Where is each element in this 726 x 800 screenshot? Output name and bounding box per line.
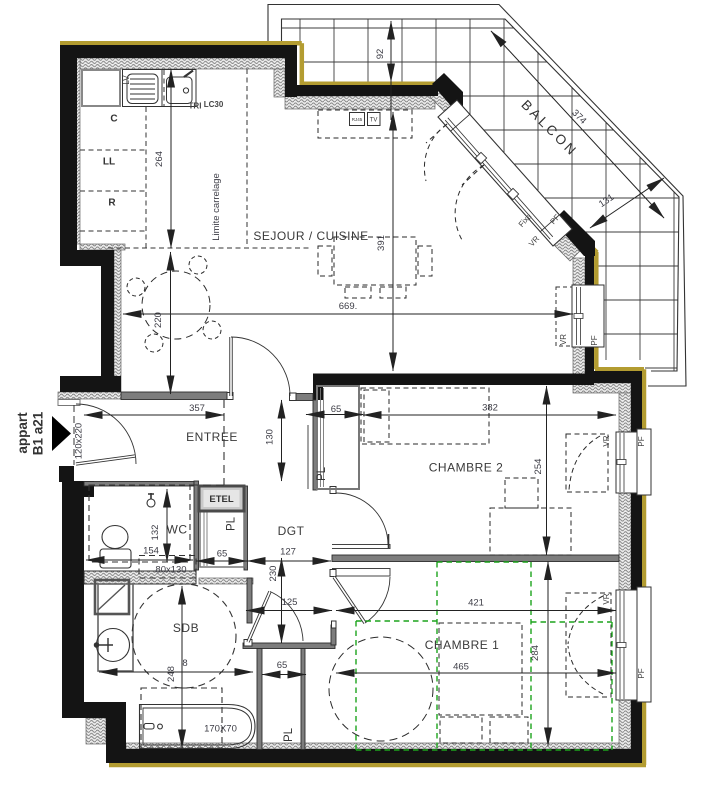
svg-text:B1 a21: B1 a21: [31, 411, 46, 455]
svg-text:Limite carrelage: Limite carrelage: [211, 173, 222, 241]
svg-text:264: 264: [154, 151, 165, 167]
svg-text:SDB: SDB: [173, 621, 199, 635]
svg-text:VR: VR: [559, 334, 568, 345]
svg-text:125: 125: [282, 597, 298, 608]
svg-text:ETEL: ETEL: [209, 494, 233, 505]
svg-text:SEJOUR / CUISINE: SEJOUR / CUISINE: [253, 229, 368, 243]
svg-text:WC: WC: [167, 523, 188, 537]
svg-text:R: R: [108, 198, 116, 209]
svg-text:PF: PF: [637, 436, 646, 446]
svg-text:PL: PL: [226, 516, 238, 531]
svg-text:382: 382: [482, 403, 498, 414]
svg-text:465: 465: [453, 662, 469, 673]
svg-text:391: 391: [376, 235, 387, 251]
svg-text:669.: 669.: [339, 301, 358, 312]
svg-text:VR: VR: [602, 435, 611, 446]
svg-text:TRI: TRI: [189, 102, 202, 111]
svg-text:92: 92: [375, 49, 386, 60]
svg-text:PF: PF: [590, 335, 599, 345]
svg-text:TV: TV: [370, 118, 378, 124]
svg-text:65: 65: [277, 660, 288, 671]
svg-text:VR: VR: [602, 593, 611, 604]
svg-text:154: 154: [143, 546, 159, 557]
svg-text:230: 230: [268, 566, 279, 582]
svg-text:357: 357: [189, 403, 205, 414]
svg-text:248: 248: [166, 666, 177, 682]
svg-text:LC30: LC30: [204, 100, 224, 109]
svg-text:65: 65: [331, 404, 342, 415]
svg-text:132: 132: [150, 525, 161, 541]
svg-text:170X70: 170X70: [204, 724, 237, 735]
svg-text:220: 220: [153, 312, 164, 328]
svg-text:C: C: [110, 114, 117, 125]
svg-text:130: 130: [265, 429, 276, 445]
svg-text:421: 421: [468, 598, 484, 609]
svg-text:80x130: 80x130: [155, 565, 186, 576]
svg-text:127: 127: [280, 547, 296, 558]
svg-text:PL: PL: [283, 727, 295, 742]
svg-text:CHAMBRE 1: CHAMBRE 1: [425, 638, 500, 652]
svg-text:RJ45: RJ45: [352, 117, 363, 122]
svg-text:8: 8: [182, 658, 187, 669]
svg-text:PF: PF: [637, 668, 646, 678]
svg-text:PL: PL: [316, 466, 328, 481]
svg-text:254: 254: [533, 459, 544, 475]
svg-text:ENTREE: ENTREE: [186, 430, 238, 444]
svg-text:DGT: DGT: [278, 524, 305, 538]
svg-text:appart: appart: [15, 412, 30, 454]
svg-text:120x220: 120x220: [74, 423, 85, 459]
svg-text:65: 65: [217, 549, 228, 560]
svg-text:CHAMBRE 2: CHAMBRE 2: [429, 461, 504, 475]
svg-text:LL: LL: [103, 157, 115, 168]
svg-text:LV: LV: [122, 75, 131, 85]
svg-text:284: 284: [530, 645, 541, 661]
